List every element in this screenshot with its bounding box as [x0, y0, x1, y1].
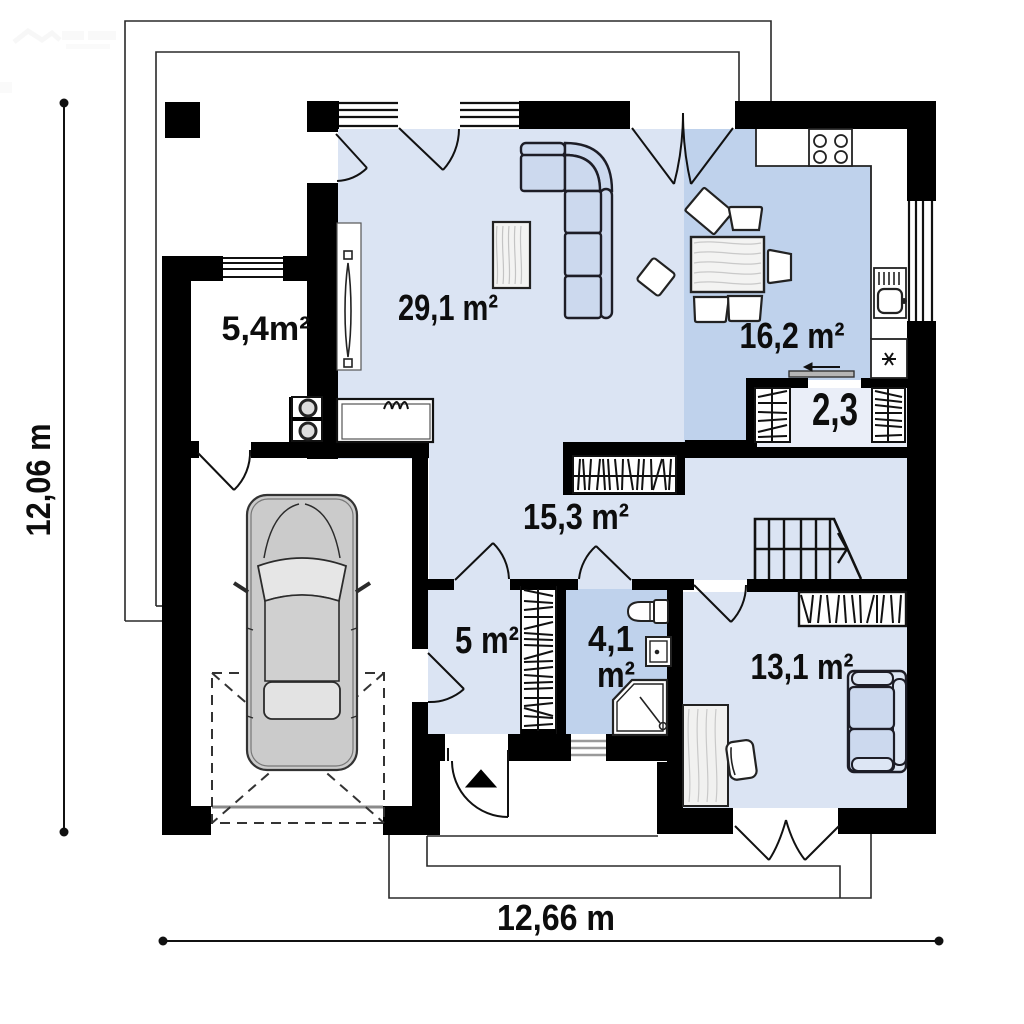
- svg-text:4,1: 4,1: [588, 618, 634, 659]
- svg-text:5 m²: 5 m²: [455, 620, 519, 662]
- svg-text:13,1 m²: 13,1 m²: [751, 646, 854, 687]
- svg-text:16,2 m²: 16,2 m²: [740, 315, 845, 356]
- svg-text:12,66 m: 12,66 m: [497, 897, 615, 938]
- svg-text:29,1 m²: 29,1 m²: [398, 287, 498, 328]
- svg-text:15,3 m²: 15,3 m²: [523, 496, 629, 537]
- svg-text:2,3: 2,3: [812, 384, 858, 435]
- svg-text:12,06 m: 12,06 m: [20, 424, 58, 537]
- svg-text:5,4m²: 5,4m²: [222, 310, 311, 348]
- svg-text:m²: m²: [597, 654, 635, 695]
